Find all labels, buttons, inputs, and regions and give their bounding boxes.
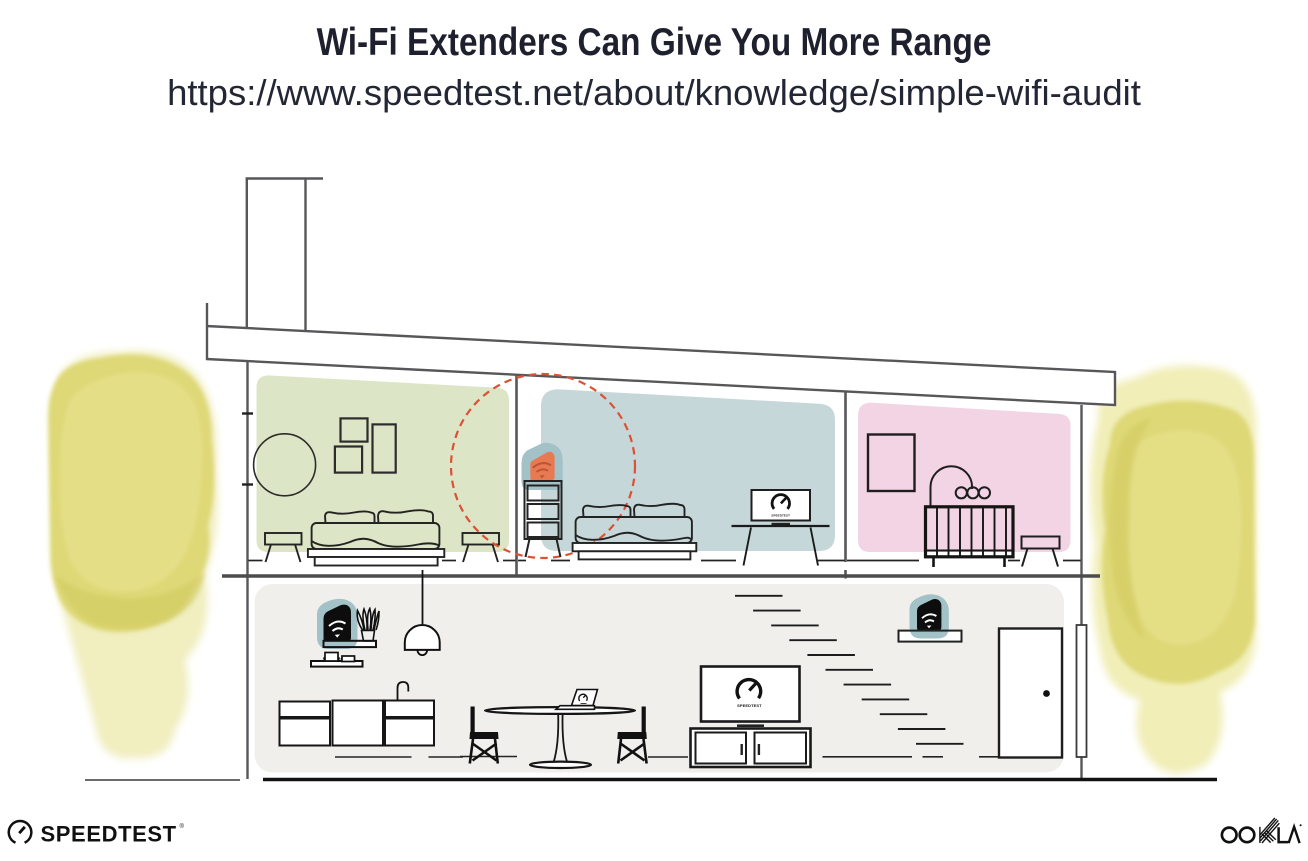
svg-text:SPEEDTEST: SPEEDTEST — [771, 514, 790, 518]
svg-text:®: ® — [180, 823, 185, 830]
svg-text:SPEEDTEST: SPEEDTEST — [737, 703, 762, 708]
svg-text:SPEEDTEST: SPEEDTEST — [41, 821, 177, 846]
